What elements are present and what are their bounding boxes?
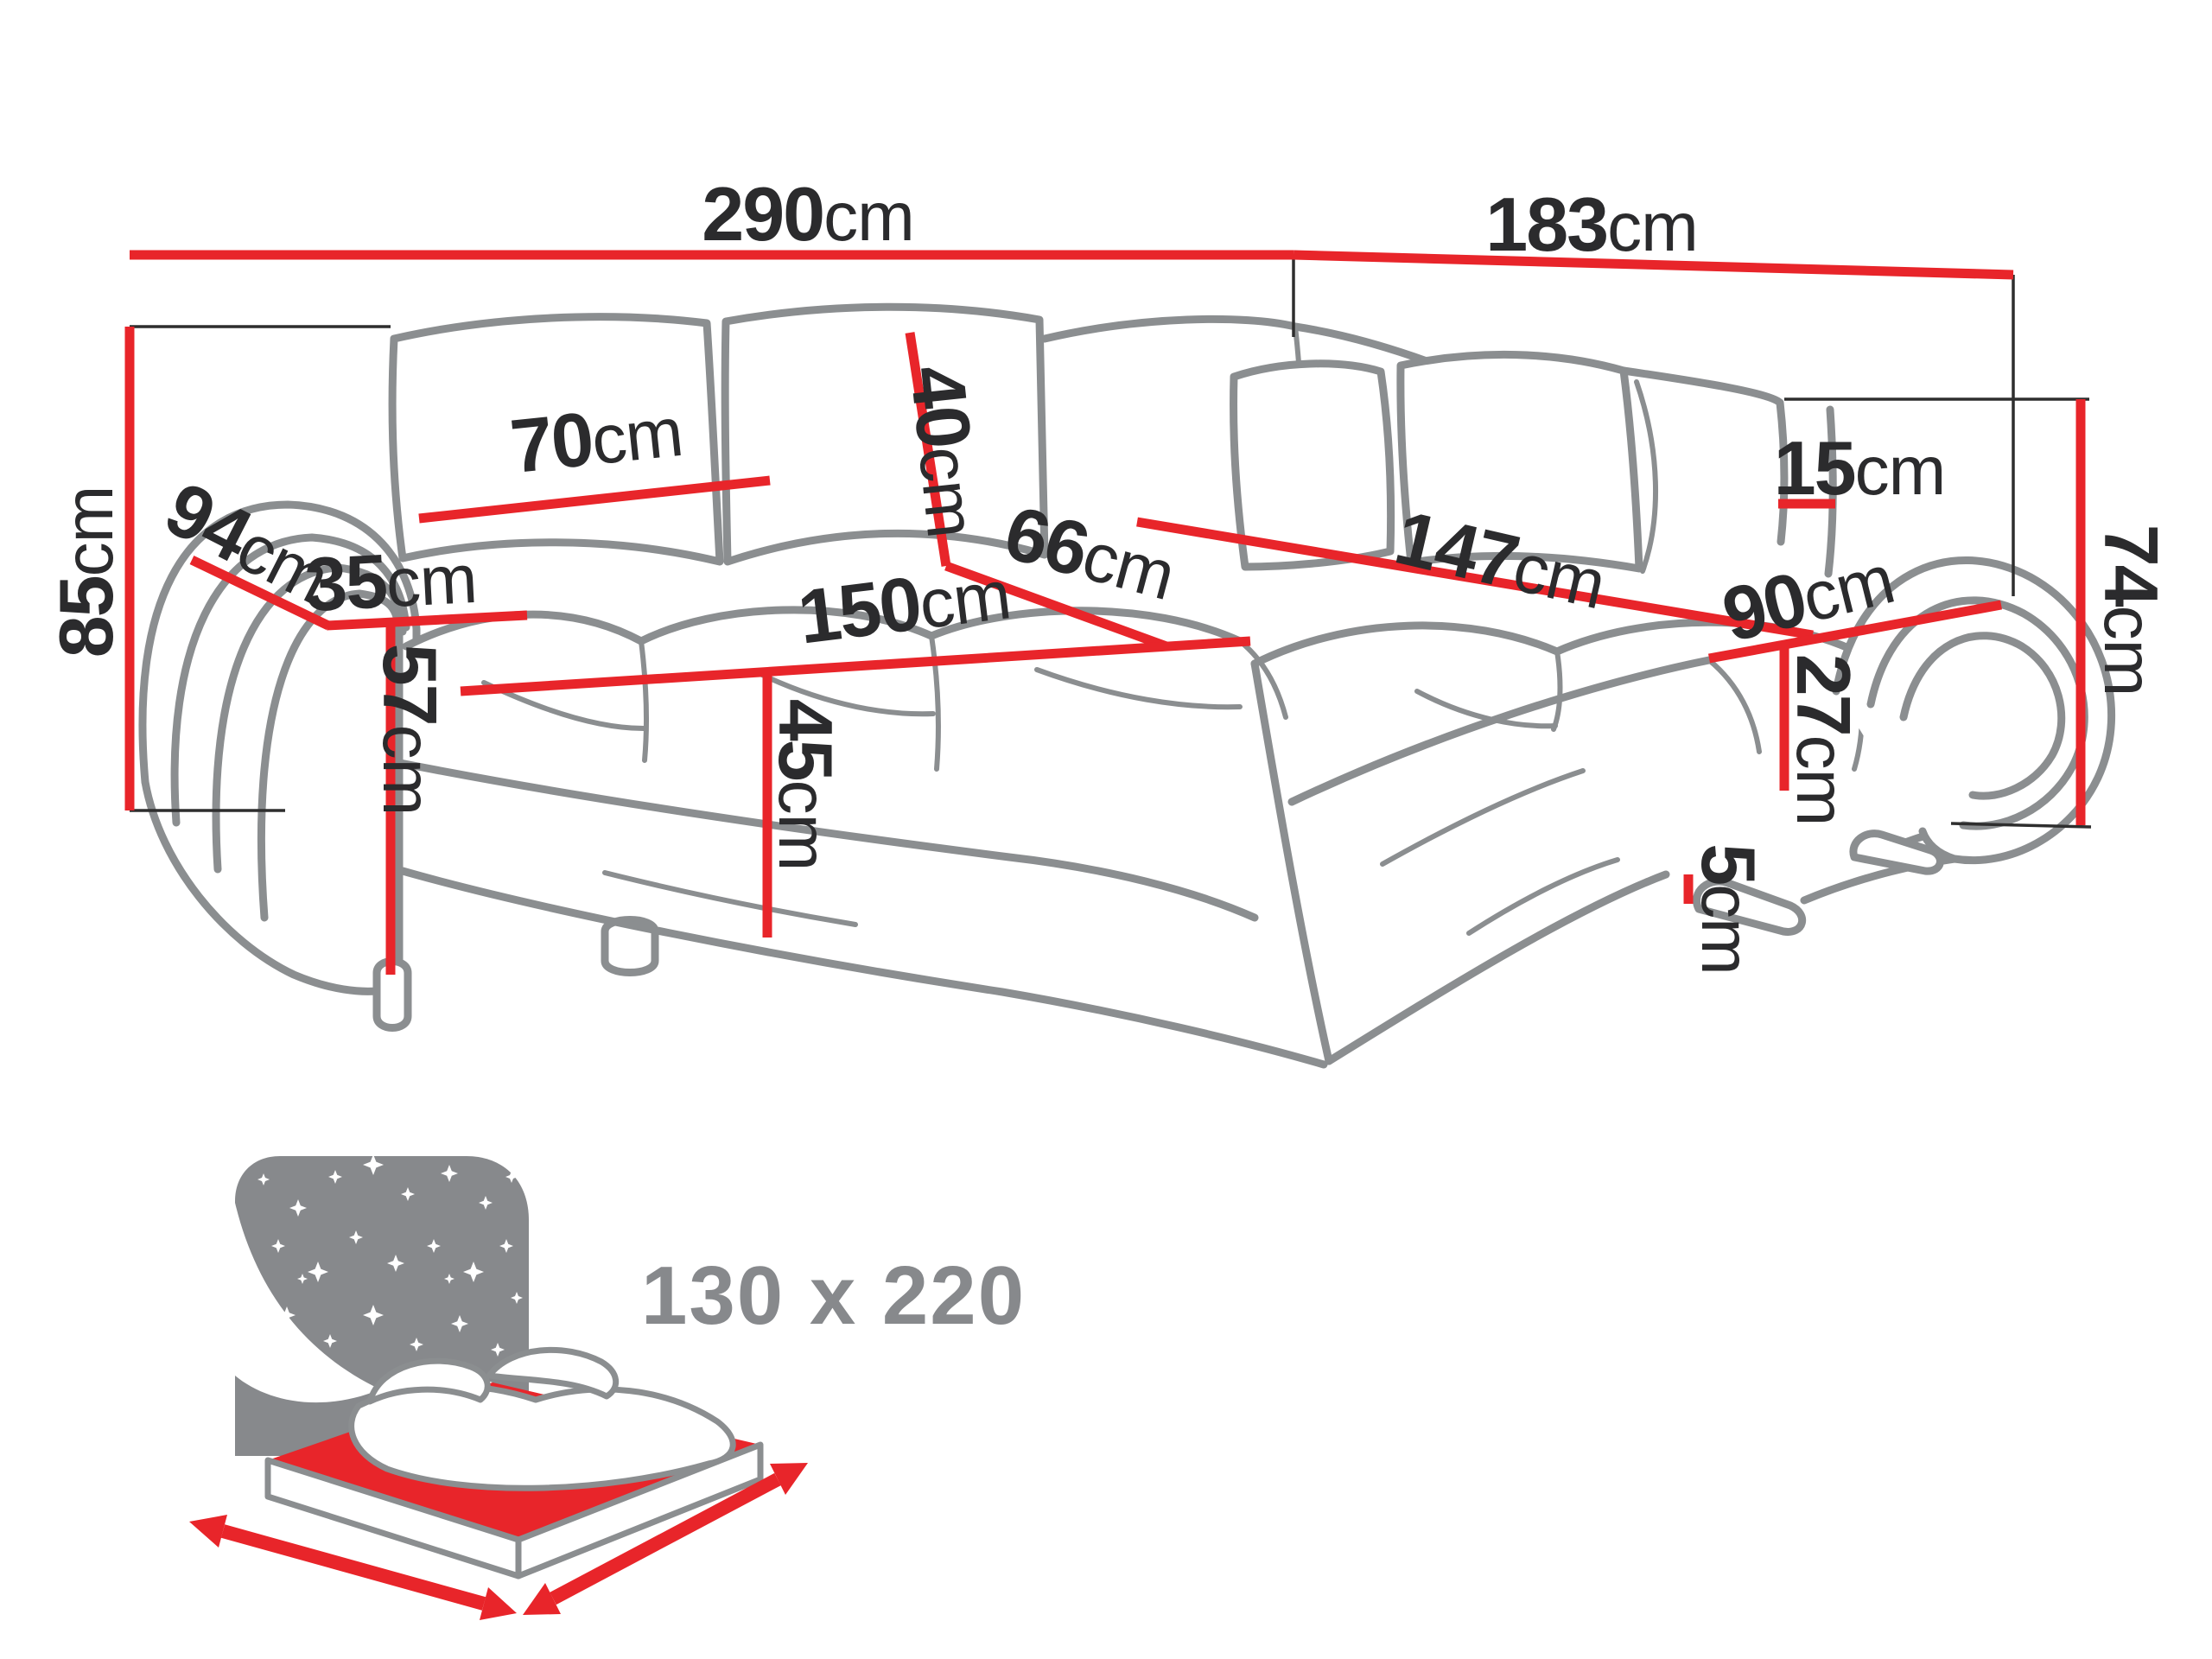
dimension-label-leg_height: 5cm [1686, 843, 1771, 975]
left-armrest-front [145, 782, 399, 991]
back-cushion-mid [725, 307, 1045, 562]
dimension-label-seat_width: 150cm [793, 549, 1014, 659]
dimension-label-base_height: 27cm [1781, 654, 1866, 826]
duvet [352, 1386, 734, 1488]
dimension-label-total_width: 290cm [702, 171, 913, 257]
dimension-label-back_height: 85cm [43, 486, 129, 658]
left-front-crease [605, 873, 855, 925]
back-panel-right [1624, 371, 1784, 542]
chaise-front-bottom [1329, 874, 1666, 1061]
sleeping-size-label: 130 x 220 [641, 1249, 1026, 1342]
dimension-label-arm_height: 57cm [367, 644, 453, 816]
dimension-label-arm_width: 35cm [302, 533, 478, 627]
seat-tuft-2 [931, 636, 938, 769]
corner-pillow [1234, 364, 1391, 567]
dimension-label-seat_height: 45cm [763, 699, 849, 871]
dimension-label-side_height: 74cm [2088, 524, 2174, 696]
seat-crease-3 [1037, 670, 1240, 707]
chaise-wave-1 [1255, 626, 1557, 664]
chaise-tuft-1 [1554, 652, 1560, 729]
chaise-inner-edge [1255, 664, 1329, 1061]
chaise-front-crease-1 [1469, 860, 1618, 933]
sofa-dimension-diagram: 290cm183cm85cm94cm35cm57cm70cm40cm66cm15… [0, 0, 2212, 1659]
left-base-bottom [403, 871, 1324, 1065]
dimension-label-back_gap: 15cm [1774, 425, 1946, 511]
dimension-label-right_depth: 183cm [1485, 181, 1697, 267]
seat-tuft-1 [641, 641, 646, 760]
chaise-front-corner [1709, 660, 1759, 752]
chaise-front-lip [1292, 660, 1709, 802]
sleeping-function-icon [189, 1154, 808, 1620]
chaise-front-crease-2 [1382, 771, 1583, 864]
diagram-stage: 290cm183cm85cm94cm35cm57cm70cm40cm66cm15… [0, 0, 2212, 1659]
